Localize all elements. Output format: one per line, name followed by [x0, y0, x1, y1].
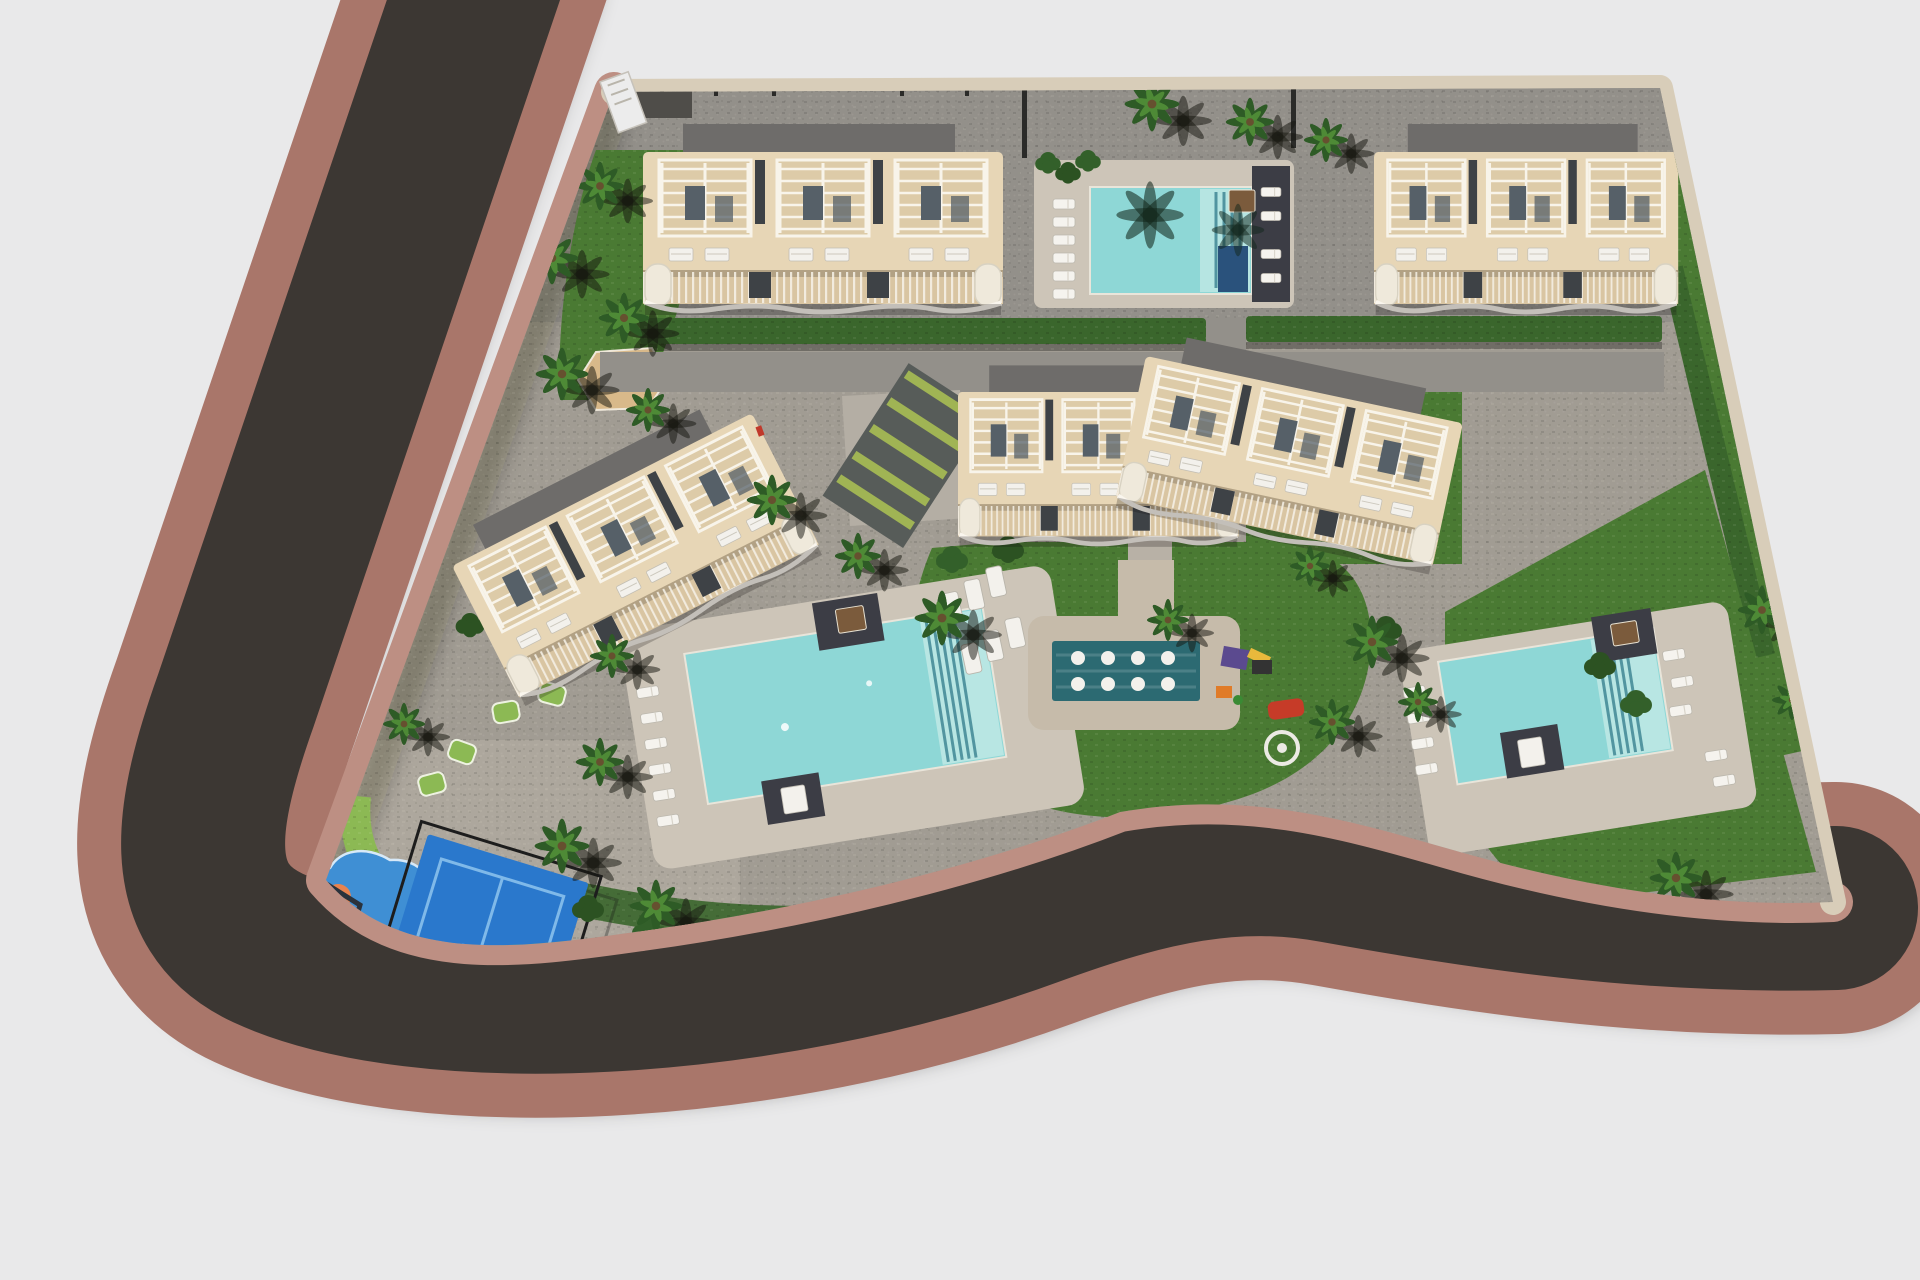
pool-lap-mat [1218, 246, 1248, 292]
daybed [1229, 190, 1255, 212]
daybed [780, 785, 808, 814]
garden-pad [491, 700, 520, 724]
site-plan-canvas [0, 0, 1920, 1280]
aerial-site-plan [0, 0, 1920, 1280]
building-block-a [643, 124, 1003, 315]
fence-post [1022, 88, 1027, 158]
daybed [1610, 620, 1639, 646]
daybed [835, 605, 866, 633]
daybed [1517, 737, 1545, 768]
building-block-b [1374, 124, 1678, 315]
